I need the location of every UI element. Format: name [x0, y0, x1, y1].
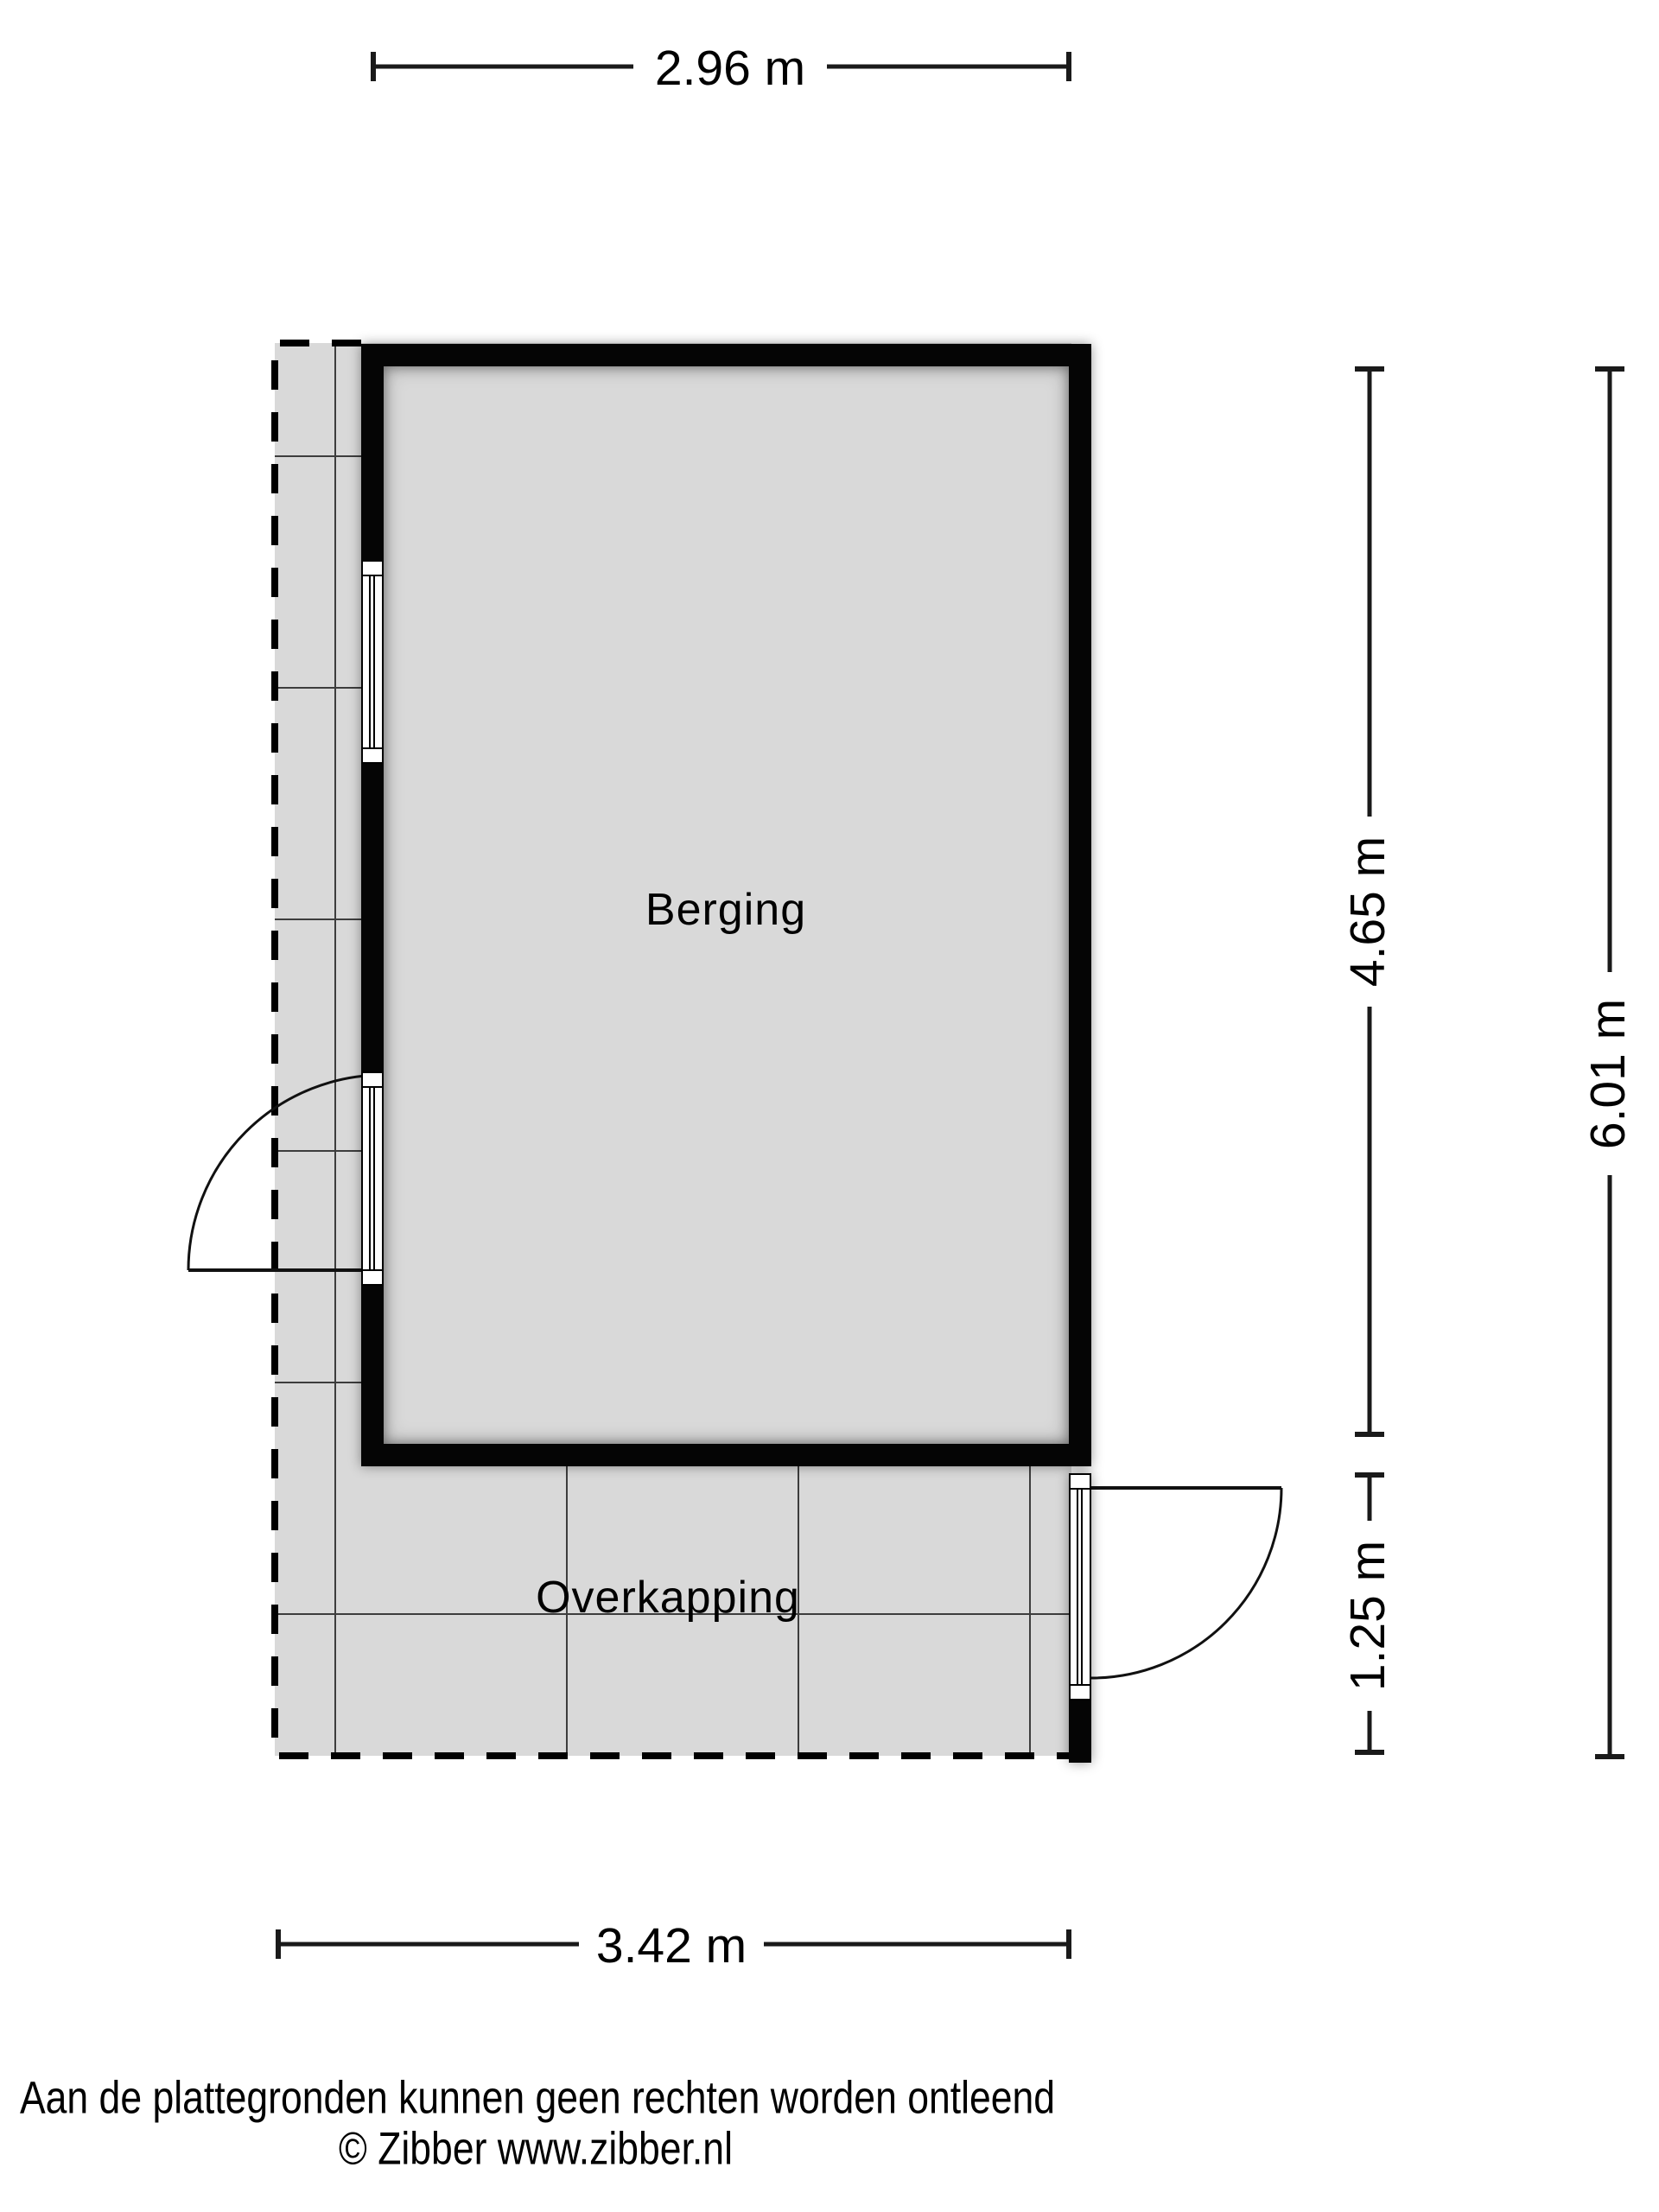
door-left: [361, 1071, 384, 1286]
footer-disclaimer: Aan de plattegronden kunnen geen rechten…: [20, 2072, 1055, 2125]
door-glazing-line: [1081, 1489, 1083, 1685]
wall-top: [361, 344, 1091, 366]
window-glazing-line: [373, 575, 375, 748]
dim-label-right-outer: 6.01 m: [1580, 999, 1637, 1149]
wall-bottom: [361, 1444, 1091, 1466]
walls-layer: [0, 0, 1659, 2212]
door-glazing-line: [369, 1087, 371, 1270]
dim-label-bottom: 3.42 m: [596, 1917, 747, 1974]
dim-label-right-lower: 1.25 m: [1339, 1541, 1396, 1691]
window-glazing-line: [369, 575, 371, 748]
wall-right-stub: [1069, 1700, 1091, 1763]
dim-label-top: 2.96 m: [655, 40, 805, 97]
floor-plan-page: Berging Overkapping 2.96 m 4.65 m 6.01 m…: [0, 0, 1659, 2212]
wall-left-upper: [361, 366, 384, 560]
room-label-berging: Berging: [645, 884, 806, 936]
footer-copyright: © Zibber www.zibber.nl: [339, 2123, 733, 2176]
room-label-overkapping: Overkapping: [536, 1572, 800, 1624]
dim-label-right-inner: 4.65 m: [1339, 836, 1396, 987]
wall-left-lower: [361, 1286, 384, 1444]
door-right: [1069, 1473, 1091, 1700]
wall-left-middle: [361, 764, 384, 1071]
door-glazing-line: [1077, 1489, 1078, 1685]
wall-right: [1069, 366, 1091, 1466]
door-glazing-line: [373, 1087, 375, 1270]
window-left: [361, 560, 384, 764]
